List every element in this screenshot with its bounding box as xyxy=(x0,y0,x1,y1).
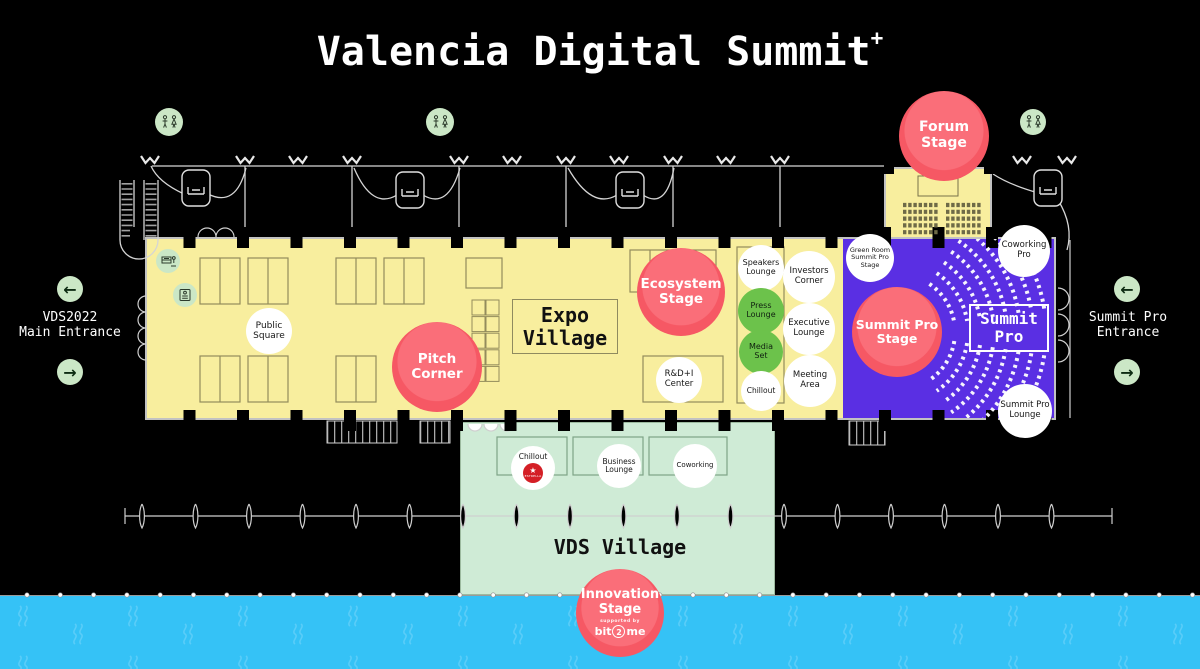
reception-circle[interactable] xyxy=(156,249,180,273)
hanging-pod-icon xyxy=(182,170,210,206)
chillout-village[interactable]: Chillout ★ ESTRELLA xyxy=(511,446,555,490)
venue-map: Valencia Digital Summit+ Expo Village Su… xyxy=(0,0,1200,669)
executive-lounge[interactable]: Executive Lounge xyxy=(783,303,835,355)
chillout-expo[interactable]: Chillout xyxy=(741,371,781,411)
supported-by-text: supported by xyxy=(600,619,640,624)
investors-corner[interactable]: Investors Corner xyxy=(783,251,835,303)
restroom-circle[interactable] xyxy=(1020,109,1046,135)
innovation-stage[interactable]: Innovation Stage supported by bit2me xyxy=(576,569,664,657)
plus-superscript: + xyxy=(871,26,884,50)
hanging-pod-icon xyxy=(1034,170,1062,206)
page-title: Valencia Digital Summit+ xyxy=(0,26,1200,75)
restroom-circle[interactable] xyxy=(426,108,454,136)
pitch-corner[interactable]: Pitch Corner xyxy=(392,322,482,412)
main-entrance-arrow-out[interactable]: → xyxy=(57,359,83,385)
expo-village-label: Expo Village xyxy=(512,299,618,354)
ecosystem-stage[interactable]: Ecosystem Stage xyxy=(637,248,725,336)
bit2me-logo: bit2me xyxy=(595,625,646,638)
forum-stage[interactable]: Forum Stage xyxy=(899,91,989,181)
accreditation-circle[interactable] xyxy=(173,283,197,307)
arrow-right-icon: → xyxy=(1120,363,1133,382)
restroom-icon xyxy=(431,115,450,129)
badge-icon xyxy=(178,288,192,302)
summit-pro-label: Summit Pro xyxy=(969,304,1049,352)
estrella-galicia-logo-icon: ★ ESTRELLA xyxy=(523,463,543,483)
vds-village-label: VDS Village xyxy=(540,534,700,560)
hanging-pod-icon xyxy=(396,172,424,208)
restroom-icon xyxy=(160,115,179,129)
speakers-lounge[interactable]: Speakers Lounge xyxy=(738,245,784,291)
bit2me-2-icon: 2 xyxy=(612,625,625,638)
press-lounge[interactable]: Press Lounge xyxy=(738,288,784,334)
star-icon: ★ xyxy=(529,467,536,474)
green-room-summit-pro-stage[interactable]: Green Room Summit Pro Stage xyxy=(846,234,894,282)
hanging-pod-icon xyxy=(616,172,644,208)
summit-pro-lounge[interactable]: Summit Pro Lounge xyxy=(998,384,1052,438)
media-set[interactable]: Media Set xyxy=(739,330,783,374)
coworking[interactable]: Coworking xyxy=(673,444,717,488)
main-entrance-arrow-in[interactable]: ← xyxy=(57,276,83,302)
arrow-left-icon: ← xyxy=(1120,280,1133,299)
business-lounge[interactable]: Business Lounge xyxy=(597,444,641,488)
summit-pro-entrance-label: Summit Pro Entrance xyxy=(1058,311,1198,340)
reception-desk-icon xyxy=(161,256,176,267)
summit-pro-entrance-arrow-out[interactable]: → xyxy=(1114,359,1140,385)
meeting-area[interactable]: Meeting Area xyxy=(784,355,836,407)
main-entrance-label: VDS2022 Main Entrance xyxy=(0,311,140,340)
arrow-right-icon: → xyxy=(63,363,76,382)
public-square[interactable]: Public Square xyxy=(246,308,292,354)
coworking-pro[interactable]: Coworking Pro xyxy=(998,225,1050,277)
summit-pro-entrance-arrow-in[interactable]: ← xyxy=(1114,276,1140,302)
rdi-center[interactable]: R&D+I Center xyxy=(656,357,702,403)
restroom-circle[interactable] xyxy=(155,108,183,136)
restroom-icon xyxy=(1024,115,1043,129)
arrow-left-icon: ← xyxy=(63,280,76,299)
summit-pro-stage[interactable]: Summit Pro Stage xyxy=(852,287,942,377)
